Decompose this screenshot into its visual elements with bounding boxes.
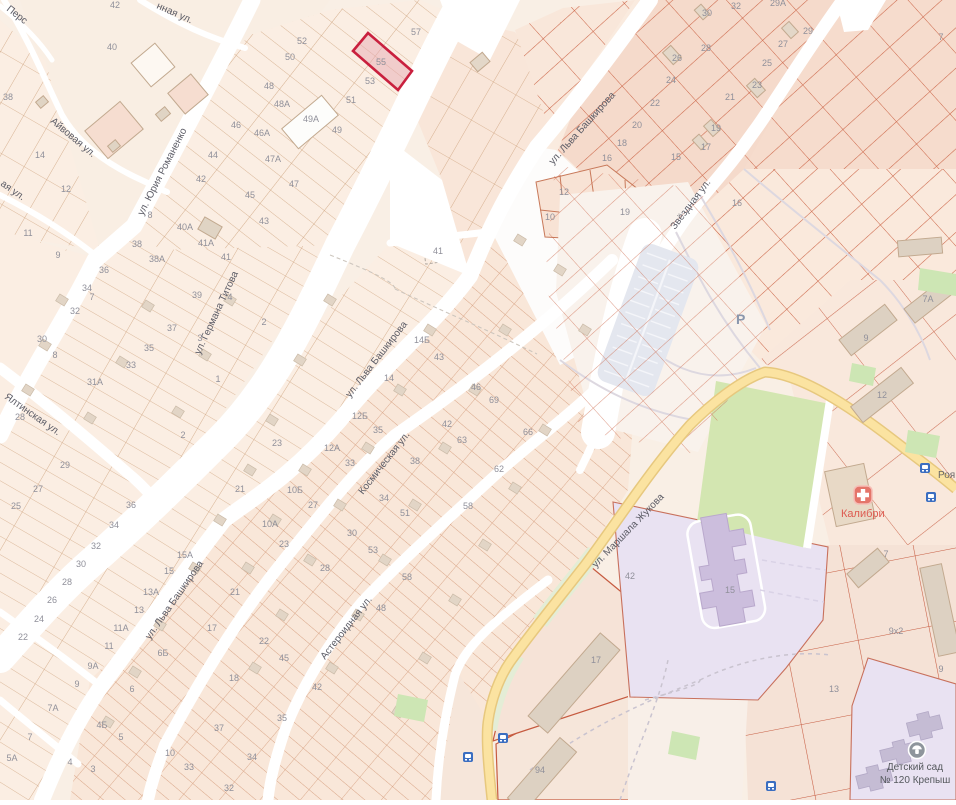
svg-text:35: 35 [373, 425, 383, 435]
svg-text:26: 26 [47, 595, 57, 605]
svg-text:14Б: 14Б [414, 335, 430, 345]
svg-text:37: 37 [167, 323, 177, 333]
svg-text:9: 9 [938, 664, 943, 674]
svg-text:5: 5 [118, 732, 123, 742]
svg-text:38: 38 [410, 456, 420, 466]
svg-text:17: 17 [207, 623, 217, 633]
svg-text:28: 28 [320, 563, 330, 573]
svg-text:12Б: 12Б [352, 411, 368, 421]
svg-text:22: 22 [259, 636, 269, 646]
svg-text:52: 52 [297, 36, 307, 46]
svg-text:25: 25 [762, 58, 772, 68]
svg-text:20: 20 [632, 120, 642, 130]
svg-text:36: 36 [99, 265, 109, 275]
svg-text:41: 41 [221, 252, 231, 262]
svg-text:34: 34 [82, 283, 92, 293]
svg-text:24: 24 [34, 614, 44, 624]
svg-text:4: 4 [67, 757, 72, 767]
svg-text:32: 32 [731, 1, 741, 11]
svg-text:53: 53 [365, 76, 375, 86]
svg-text:33: 33 [126, 360, 136, 370]
svg-text:41: 41 [433, 246, 443, 256]
svg-text:24: 24 [666, 75, 676, 85]
svg-text:6: 6 [129, 684, 134, 694]
svg-text:4Б: 4Б [97, 720, 108, 730]
svg-text:19: 19 [620, 207, 630, 217]
svg-text:7: 7 [883, 549, 888, 559]
svg-text:13: 13 [134, 605, 144, 615]
svg-text:43: 43 [259, 216, 269, 226]
svg-text:40: 40 [107, 42, 117, 52]
svg-text:34: 34 [247, 752, 257, 762]
svg-text:48: 48 [264, 81, 274, 91]
svg-text:30: 30 [76, 559, 86, 569]
svg-text:2: 2 [180, 430, 185, 440]
svg-text:18: 18 [229, 673, 239, 683]
svg-text:23: 23 [752, 80, 762, 90]
svg-text:9х2: 9х2 [889, 626, 904, 636]
svg-text:30: 30 [37, 334, 47, 344]
svg-text:№ 120 Крепыш: № 120 Крепыш [880, 775, 951, 786]
svg-text:47А: 47А [265, 154, 281, 164]
svg-text:Калибри: Калибри [841, 508, 885, 520]
svg-text:53: 53 [368, 545, 378, 555]
svg-text:13А: 13А [143, 587, 159, 597]
svg-text:22: 22 [18, 632, 28, 642]
svg-text:42: 42 [442, 419, 452, 429]
svg-text:32: 32 [70, 306, 80, 316]
svg-text:27: 27 [778, 39, 788, 49]
svg-text:14: 14 [384, 373, 394, 383]
svg-text:7А: 7А [922, 294, 933, 304]
svg-text:Детский сад: Детский сад [887, 762, 943, 773]
svg-text:19: 19 [711, 123, 721, 133]
svg-text:40А: 40А [177, 222, 193, 232]
svg-text:23: 23 [272, 438, 282, 448]
svg-text:42: 42 [625, 571, 635, 581]
svg-text:33: 33 [345, 458, 355, 468]
svg-text:4: 4 [227, 292, 232, 302]
svg-text:5А: 5А [6, 753, 17, 763]
svg-text:12: 12 [877, 390, 887, 400]
svg-text:46А: 46А [254, 128, 270, 138]
svg-text:62: 62 [494, 464, 504, 474]
svg-text:48: 48 [376, 603, 386, 613]
svg-text:37: 37 [214, 723, 224, 733]
svg-text:39: 39 [192, 290, 202, 300]
svg-text:33: 33 [184, 762, 194, 772]
svg-text:13: 13 [829, 684, 839, 694]
svg-text:P: P [736, 311, 745, 327]
svg-text:29: 29 [60, 460, 70, 470]
svg-text:11А: 11А [113, 623, 128, 633]
svg-text:29: 29 [803, 26, 813, 36]
svg-text:55: 55 [376, 57, 386, 67]
svg-text:69: 69 [489, 395, 499, 405]
svg-text:25: 25 [11, 501, 21, 511]
svg-text:36: 36 [126, 500, 136, 510]
svg-text:12: 12 [559, 187, 569, 197]
svg-text:26: 26 [672, 53, 682, 63]
svg-text:21: 21 [235, 484, 245, 494]
svg-text:17: 17 [701, 142, 711, 152]
svg-text:28: 28 [701, 43, 711, 53]
svg-text:7: 7 [938, 32, 943, 42]
svg-text:23: 23 [279, 539, 289, 549]
svg-text:42: 42 [110, 0, 120, 10]
svg-text:41А: 41А [198, 238, 214, 248]
svg-text:58: 58 [402, 572, 412, 582]
svg-text:50: 50 [285, 52, 295, 62]
svg-text:30: 30 [347, 528, 357, 538]
svg-text:Роя: Роя [938, 470, 955, 481]
svg-text:10: 10 [165, 748, 175, 758]
svg-text:46: 46 [231, 120, 241, 130]
svg-text:38А: 38А [149, 254, 165, 264]
svg-text:14: 14 [35, 150, 45, 160]
svg-text:15: 15 [164, 566, 174, 576]
svg-text:10Б: 10Б [287, 485, 303, 495]
svg-text:1: 1 [215, 374, 220, 384]
svg-text:45: 45 [245, 190, 255, 200]
svg-text:31А: 31А [87, 377, 103, 387]
svg-text:3: 3 [197, 333, 202, 343]
svg-text:38: 38 [3, 92, 13, 102]
svg-text:58: 58 [463, 501, 473, 511]
svg-text:12А: 12А [324, 443, 340, 453]
svg-text:10: 10 [545, 212, 555, 222]
svg-text:9: 9 [863, 333, 868, 343]
svg-text:46: 46 [471, 382, 481, 392]
svg-text:21: 21 [230, 587, 240, 597]
svg-text:8: 8 [147, 210, 152, 220]
svg-text:94: 94 [535, 765, 545, 775]
svg-text:42: 42 [196, 174, 206, 184]
svg-text:34: 34 [109, 520, 119, 530]
svg-text:35: 35 [277, 713, 287, 723]
svg-text:51: 51 [400, 508, 410, 518]
svg-text:43: 43 [434, 352, 444, 362]
svg-text:34: 34 [379, 493, 389, 503]
svg-text:44: 44 [208, 150, 218, 160]
svg-text:10А: 10А [262, 519, 278, 529]
svg-text:29А: 29А [770, 0, 786, 8]
svg-text:6Б: 6Б [158, 648, 169, 658]
svg-text:27: 27 [33, 484, 43, 494]
svg-text:7: 7 [27, 732, 32, 742]
svg-text:66: 66 [523, 427, 533, 437]
svg-text:11: 11 [104, 641, 113, 651]
svg-text:15А: 15А [177, 550, 193, 560]
svg-text:9: 9 [74, 679, 79, 689]
svg-text:7: 7 [89, 292, 94, 302]
svg-text:49: 49 [332, 125, 342, 135]
svg-text:9: 9 [55, 250, 60, 260]
svg-text:8: 8 [52, 350, 57, 360]
svg-text:3: 3 [90, 764, 95, 774]
svg-text:45: 45 [279, 653, 289, 663]
svg-text:38: 38 [132, 239, 142, 249]
svg-text:28: 28 [15, 412, 25, 422]
svg-text:35: 35 [144, 343, 154, 353]
svg-text:32: 32 [91, 541, 101, 551]
svg-text:15: 15 [725, 585, 735, 595]
svg-text:7А: 7А [47, 703, 58, 713]
svg-text:48А: 48А [274, 99, 290, 109]
svg-text:9А: 9А [87, 661, 98, 671]
svg-text:51: 51 [346, 95, 356, 105]
svg-text:16: 16 [602, 153, 612, 163]
svg-text:63: 63 [457, 435, 467, 445]
svg-text:30: 30 [702, 8, 712, 18]
svg-text:11: 11 [23, 228, 32, 238]
svg-text:22: 22 [650, 98, 660, 108]
svg-text:21: 21 [725, 92, 735, 102]
svg-text:16: 16 [732, 198, 742, 208]
svg-text:15: 15 [671, 152, 681, 162]
svg-text:49А: 49А [303, 114, 319, 124]
svg-text:28: 28 [62, 577, 72, 587]
svg-text:2: 2 [261, 317, 266, 327]
svg-text:42: 42 [312, 682, 322, 692]
svg-text:18: 18 [617, 138, 627, 148]
svg-text:27: 27 [308, 500, 318, 510]
svg-text:12: 12 [61, 184, 71, 194]
svg-text:57: 57 [411, 27, 421, 37]
svg-text:32: 32 [224, 783, 234, 793]
svg-text:17: 17 [591, 655, 601, 665]
svg-text:47: 47 [289, 179, 299, 189]
